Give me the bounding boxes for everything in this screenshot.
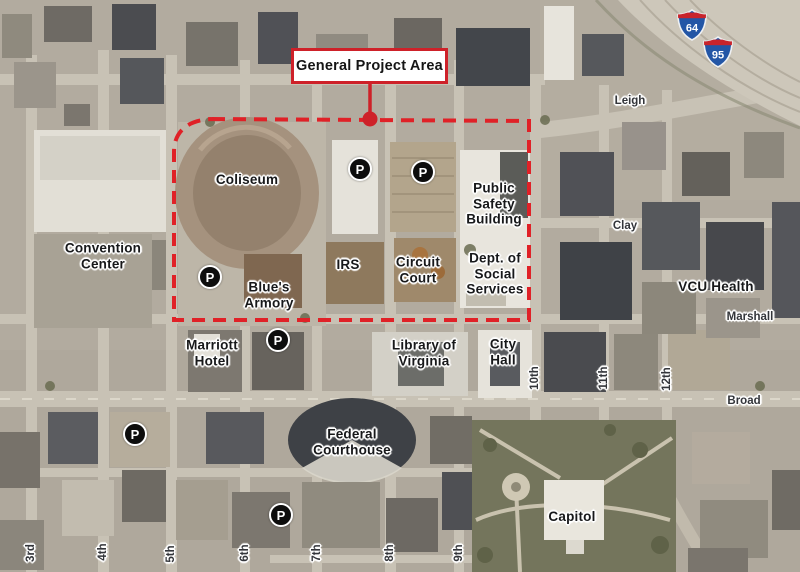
- project-area-callout: General Project Area: [291, 48, 448, 84]
- parking-marker: P: [123, 422, 147, 446]
- parking-marker: P: [269, 503, 293, 527]
- parking-marker: P: [411, 160, 435, 184]
- street-label-broad: Broad: [727, 395, 760, 407]
- parking-symbol: P: [206, 270, 215, 285]
- parking-marker: P: [266, 328, 290, 352]
- callout-connector-dot: [363, 112, 378, 127]
- label-coliseum: Coliseum: [216, 172, 278, 188]
- interstate-64-number: 64: [686, 23, 699, 35]
- label-circuit-court: Circuit Court: [396, 254, 440, 285]
- label-public-safety: Public Safety Building: [466, 181, 522, 228]
- street-label-9th: 9th: [453, 544, 465, 561]
- label-city-hall: City Hall: [490, 336, 516, 367]
- project-area-callout-label: General Project Area: [296, 58, 443, 74]
- street-label-4th: 4th: [97, 543, 109, 560]
- street-label-10th: 10th: [529, 366, 541, 390]
- interstate-95-number: 95: [712, 50, 724, 62]
- street-label-clay: Clay: [613, 220, 637, 232]
- aerial-map-image: General Project Area Coliseum Convention…: [0, 0, 800, 572]
- label-blues-armory: Blue's Armory: [244, 279, 293, 310]
- parking-marker: P: [348, 157, 372, 181]
- parking-symbol: P: [356, 162, 365, 177]
- label-vcu-health: VCU Health: [678, 279, 754, 295]
- label-capitol: Capitol: [548, 509, 595, 525]
- label-library-of-virginia: Library of Virginia: [392, 337, 456, 368]
- street-label-marshall: Marshall: [727, 311, 774, 323]
- street-label-3rd: 3rd: [25, 544, 37, 562]
- parking-symbol: P: [131, 427, 140, 442]
- label-irs: IRS: [336, 257, 359, 273]
- label-social-services: Dept. of Social Services: [466, 251, 523, 298]
- label-federal-courthouse: Federal Courthouse: [313, 426, 391, 457]
- parking-symbol: P: [277, 508, 286, 523]
- label-marriott-hotel: Marriott Hotel: [186, 337, 238, 368]
- label-convention-center: Convention Center: [65, 240, 141, 271]
- interstate-95-shield-icon: 95: [703, 36, 733, 68]
- parking-symbol: P: [419, 165, 428, 180]
- street-label-leigh: Leigh: [615, 95, 646, 107]
- parking-symbol: P: [274, 333, 283, 348]
- street-label-7th: 7th: [311, 544, 323, 561]
- parking-marker: P: [198, 265, 222, 289]
- street-label-5th: 5th: [165, 545, 177, 562]
- street-label-11th: 11th: [598, 366, 610, 389]
- street-label-8th: 8th: [384, 544, 396, 561]
- street-label-6th: 6th: [239, 544, 251, 561]
- street-label-12th: 12th: [661, 367, 673, 391]
